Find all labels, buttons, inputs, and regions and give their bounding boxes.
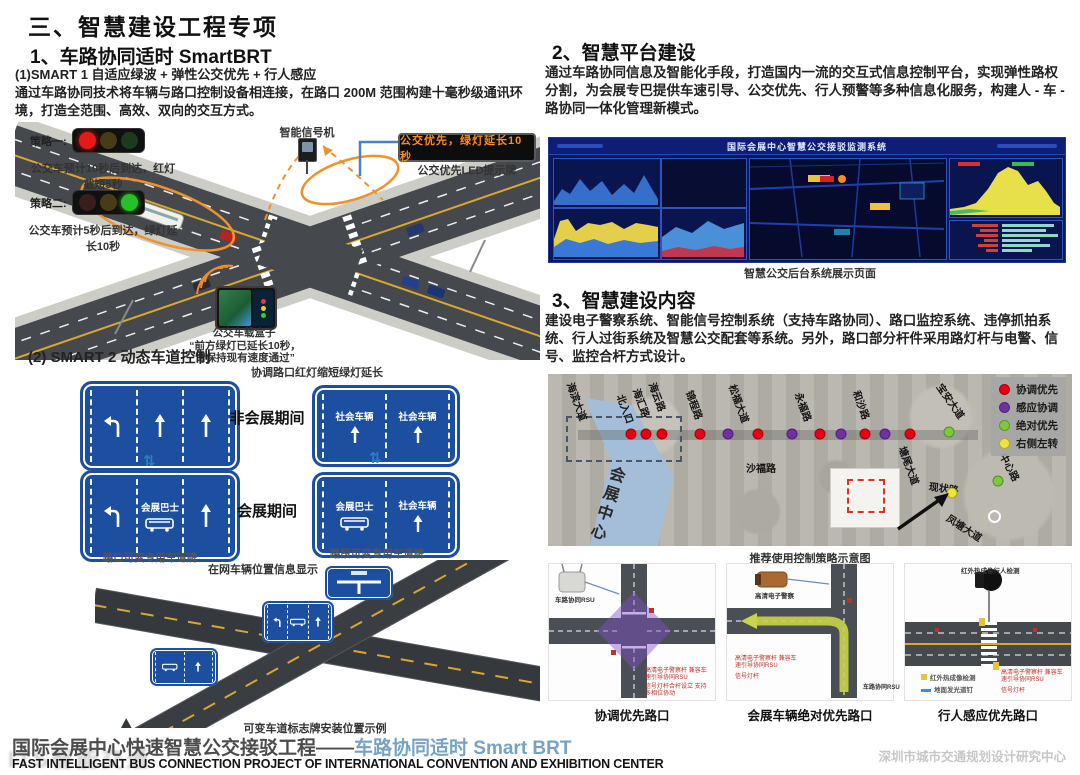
bus-obu-device-icon	[215, 286, 277, 330]
mini-route-sign	[325, 566, 393, 600]
footer-org: 深圳市城市交通规划设计研究中心	[878, 746, 1066, 765]
bus-priority-led-sign: 公交优先，绿灯延长10秒	[398, 133, 536, 162]
led-sign-label: 公交优先LED提示牌	[400, 162, 534, 178]
section1-heading: 1、车路协同适时 SmartBRT	[30, 42, 272, 69]
mini-lane-sign	[262, 601, 334, 643]
lane-sign-nonexpo-segment: 社会车辆 社会车辆	[312, 385, 460, 467]
caption-segment-sign: 路段可变专用车道牌	[302, 546, 452, 561]
bus-icon	[162, 663, 178, 672]
diagram-caption: 行人感应优先路口	[904, 705, 1072, 724]
up-arrow-icon	[152, 413, 168, 439]
bus-icon	[340, 516, 370, 532]
rsu-device-label: 车路协同RSU	[555, 594, 595, 604]
diagram-note: 地面发光道钉	[934, 687, 973, 694]
toggle-arrows-icon: ⇅	[369, 452, 382, 466]
lane-label: 会展巴士	[141, 500, 179, 514]
dashboard-caption: 智慧公交后台系统展示页面	[680, 265, 940, 281]
strategy1-text: 公交车预计10秒后到达，红灯截短5秒	[28, 160, 178, 192]
section3-para: 建设电子警察系统、智能信号控制系统（支持车路协同）、路口监控系统、违停抓拍系统、…	[545, 312, 1069, 366]
led-sign-text: 公交优先，绿灯延长10秒	[400, 132, 534, 164]
section1-sub2: (2) SMART 2 动态车道控制	[28, 349, 211, 367]
left-turn-arrow-icon	[103, 503, 125, 529]
section1-sub1: (1)SMART 1 自适应绿波 + 弹性公交优先 + 行人感应	[15, 66, 540, 84]
rsu-device-label: 车路协同RSU	[863, 682, 900, 691]
section1-para: 通过车路协同技术将车辆与路口控制设备相连接，在路口 200M 范围构建十毫秒级通…	[15, 84, 543, 120]
diagram-note: 信号灯杆	[735, 674, 801, 681]
lane-label: 社会车辆	[398, 498, 436, 512]
legend-dot-icon	[999, 420, 1010, 431]
diagram-caption: 会展车辆绝对优先路口	[726, 705, 894, 724]
lane-label: 社会车辆	[335, 409, 373, 423]
map-legend-item: 感应协调	[999, 400, 1058, 415]
signal-machine-pole	[306, 160, 308, 174]
legend-dot-icon	[999, 402, 1010, 413]
lane-label: 会展巴士	[335, 499, 373, 513]
mini-lane-sign	[150, 648, 218, 686]
strategy1: 策略一:	[30, 128, 145, 153]
strategy2-text: 公交车预计5秒后到达，绿灯延长10秒	[28, 222, 178, 254]
thermal-camera-label: 红外热成像行人检测	[961, 565, 1020, 575]
up-arrow-icon	[198, 413, 214, 439]
coordination-note: 协调路口红灯缩短绿灯延长	[232, 364, 402, 380]
legend-dot-icon	[999, 438, 1010, 449]
up-arrow-icon	[411, 426, 425, 444]
traffic-light-red-icon	[72, 128, 145, 153]
diagram-note: 信号灯杆合杆设立 支持多相位协动	[645, 684, 711, 698]
section2-para: 通过车路协同信息及智能化手段，打造国内一流的交互式信息控制平台，实现弹性路权分割…	[545, 64, 1067, 118]
diagram-caption: 协调优先路口	[548, 705, 716, 724]
diagram-note: 高清电子警察杆 兼容车速引导协同RSU	[1001, 670, 1067, 684]
diagram-note: 信号灯杆	[1001, 688, 1067, 695]
dashboard-title: 国际会展中心智慧公交接驳监测系统	[549, 140, 1065, 153]
up-arrow-icon	[411, 515, 425, 533]
section2-heading: 2、智慧平台建设	[552, 38, 696, 65]
footer-title-zh-gray: 国际会展中心快速智慧公交接驳工程——	[12, 738, 354, 759]
diagram-note: 高清电子警察杆 兼容车速引导协同RSU	[735, 656, 801, 670]
section3-heading: 3、智慧建设内容	[552, 286, 696, 313]
poster-page: 三、智慧建设工程专项 1、车路协同适时 SmartBRT (1)SMART 1 …	[0, 0, 1080, 775]
legend-label: 绝对优先	[1016, 418, 1058, 433]
diagram-pedestrian-priority: 红外热成像行人检测 红外热成像检测 地面发光道钉 高清电子警察杆 兼容车速引导协…	[904, 563, 1072, 724]
diagram-note: 高清电子警察杆 兼容车速引导协同RSU	[645, 668, 711, 682]
legend-dot-icon	[999, 384, 1010, 395]
page-title: 三、智慧建设工程专项	[28, 8, 278, 42]
traffic-light-green-icon	[72, 190, 145, 215]
map-legend-item: 协调优先	[999, 382, 1058, 397]
dashboard-screenshot: 国际会展中心智慧公交接驳监测系统	[548, 137, 1066, 263]
bus-icon	[145, 517, 175, 533]
left-turn-arrow-icon	[103, 413, 125, 439]
legend-label: 右侧左转	[1016, 436, 1058, 451]
camera-device-label: 高清电子警察	[755, 590, 794, 600]
footer-title-en: FAST INTELLIGENT BUS CONNECTION PROJECT …	[12, 757, 663, 771]
map-legend-item: 右侧左转	[999, 436, 1058, 451]
control-strategy-map: 海滨大道 北入口 海汇路 海云路 锦程路 松福大道 永福路 和沙路 宝安大道 塘…	[548, 374, 1072, 546]
lane-sign-nonexpo-intersection	[80, 381, 240, 471]
diagram-coordinated-priority: 车路协同RSU 高清电子警察杆 兼容车速引导协同RSU 信号灯杆合杆设立 支持多…	[548, 563, 716, 724]
lane-label: 社会车辆	[398, 409, 436, 423]
legend-label: 感应协调	[1016, 400, 1058, 415]
up-arrow-icon	[194, 661, 202, 673]
diagram-absolute-priority: 高清电子警察 高清电子警察杆 兼容车速引导协同RSU 信号灯杆 车路协同RSU …	[726, 563, 894, 724]
intersection-diagram-row: 车路协同RSU 高清电子警察杆 兼容车速引导协同RSU 信号灯杆合杆设立 支持多…	[548, 563, 1072, 724]
lane-sign-expo-intersection: 会展巴士	[80, 470, 240, 562]
left-turn-arrow-icon	[273, 616, 283, 628]
strategy1-label: 策略一:	[30, 133, 67, 149]
signal-machine-icon	[298, 138, 317, 162]
strategy2: 策略二:	[30, 190, 145, 215]
up-arrow-icon	[348, 426, 362, 444]
label-non-expo-period: 非会展期间	[224, 407, 310, 428]
label-expo-period: 会展期间	[224, 500, 310, 521]
variable-lane-sign-location-diagram	[95, 560, 540, 728]
map-legend-item: 绝对优先	[999, 418, 1058, 433]
footer-title-zh: 国际会展中心快速智慧公交接驳工程——车路协同适时 Smart BRT	[12, 733, 571, 760]
diagram-note: 红外热成像检测	[930, 675, 976, 682]
bus-icon	[290, 618, 306, 627]
up-arrow-icon	[314, 616, 322, 628]
footer-title-zh-blue: 车路协同适时 Smart BRT	[354, 738, 571, 759]
toggle-arrows-icon: ⇅	[143, 455, 156, 469]
legend-label: 协调优先	[1016, 382, 1058, 397]
strategy2-label: 策略二:	[30, 195, 67, 211]
up-arrow-icon	[198, 503, 214, 529]
map-legend: 协调优先感应协调绝对优先右侧左转	[991, 377, 1066, 456]
